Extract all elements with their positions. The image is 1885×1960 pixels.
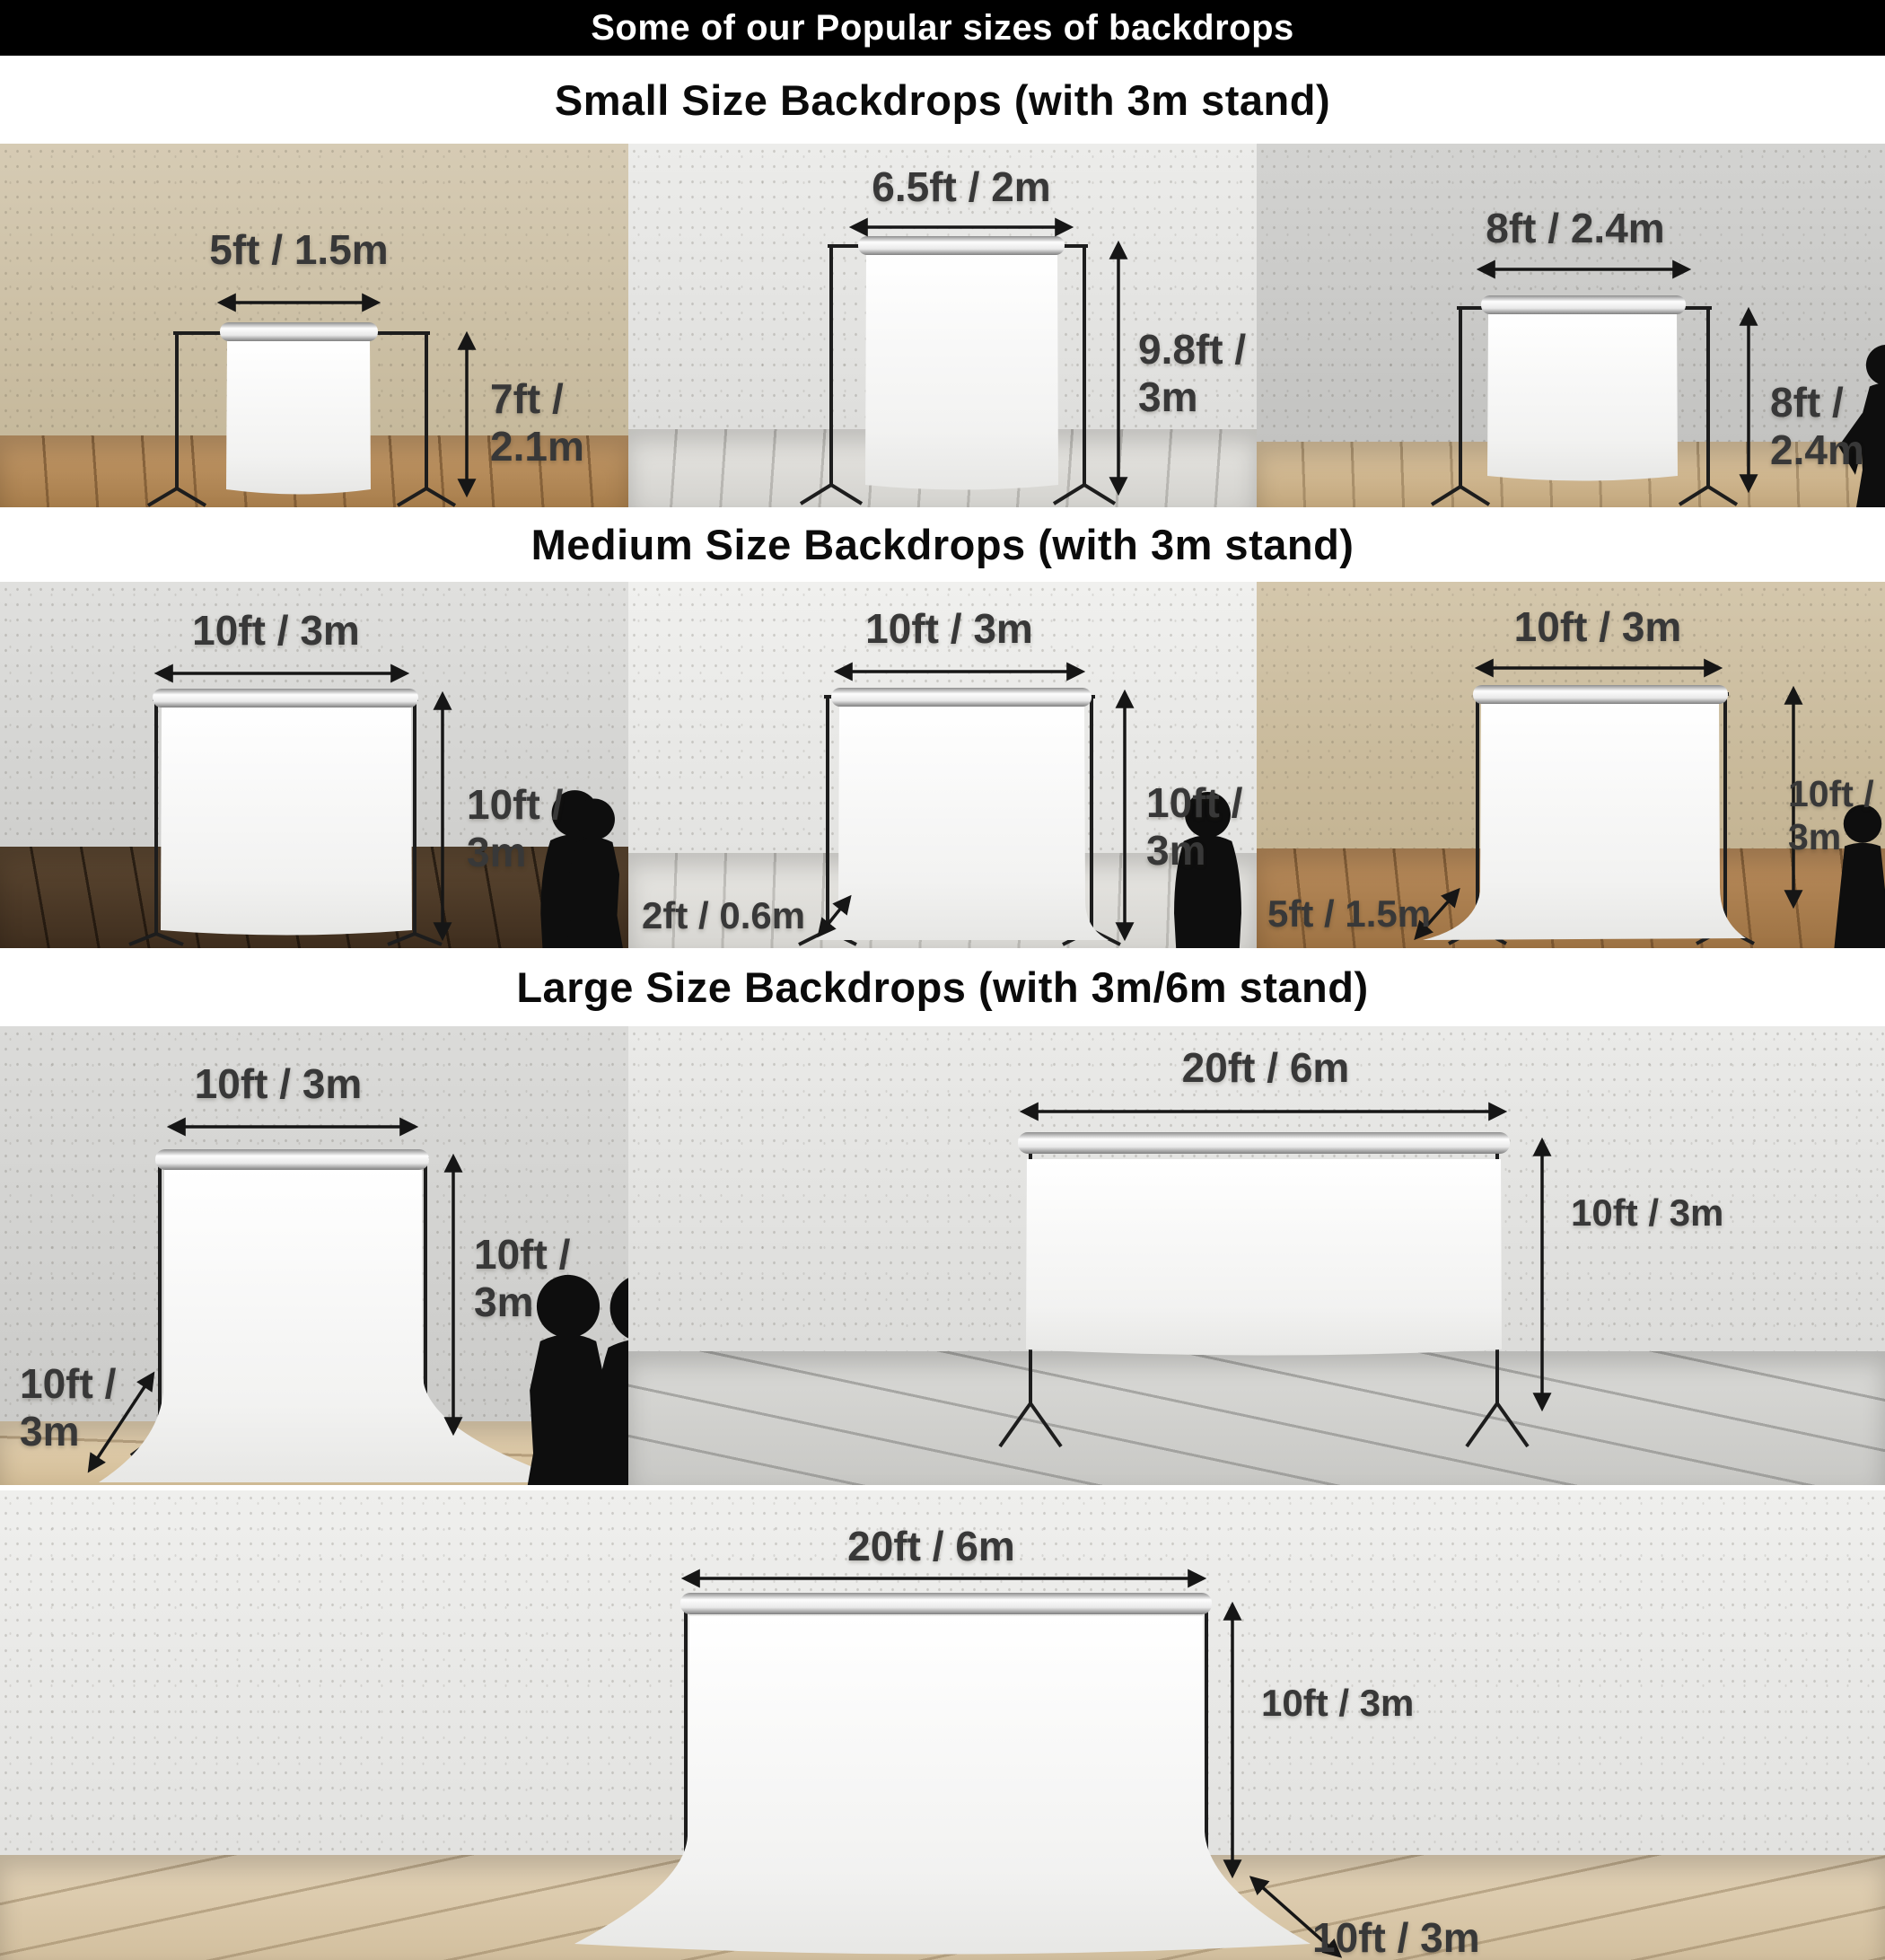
width-dimension-label: 10ft / 3m [117,607,435,655]
width-dimension-label: 10ft / 3m [790,605,1109,653]
width-dimension-label: 6.5ft / 2m [804,163,1118,211]
panel-small-8ft: 8ft / 2.4m 8ft / 2.4m [1257,144,1885,507]
section-heading-large-text: Large Size Backdrops (with 3m/6m stand) [516,962,1368,1012]
width-dimension-label: 20ft / 6m [1109,1044,1423,1092]
girl-silhouette-icon [1246,364,1257,507]
backdrop-roll [831,688,1092,707]
backdrop-sizes-infographic: Some of our Popular sizes of backdrops S… [0,0,1885,1960]
section-heading-small: Small Size Backdrops (with 3m stand) [0,56,1885,144]
row-large: 10ft / 3m 10ft / 3m 10ft / 3m [0,1026,1885,1485]
height-dimension-label: 10ft / 3m [1571,1191,1804,1235]
backdrop-roll [1018,1132,1510,1154]
section-heading-small-text: Small Size Backdrops (with 3m stand) [555,75,1330,125]
backdrop-roll [220,322,378,341]
height-dimension-label: 10ft / 3m [474,1231,570,1327]
panel-medium-couple: 10ft / 3m 10ft / 3m [0,582,628,948]
section-heading-large: Large Size Backdrops (with 3m/6m stand) [0,948,1885,1026]
sweep-dimension-label: 10ft / 3m [1312,1914,1564,1960]
backdrop-sheet [226,339,371,495]
backdrop-roll [858,236,1065,255]
backdrop-roll [680,1593,1212,1614]
height-dimension-label: 10ft / 3m [1146,779,1242,875]
sweep-dimension-label: 5ft / 1.5m [1267,892,1451,936]
height-dimension-label: 10ft / 3m [467,781,563,877]
backdrop-roll [153,689,418,708]
banner-title: Some of our Popular sizes of backdrops [591,8,1294,48]
width-dimension-label: 10ft / 3m [121,1060,435,1108]
height-dimension-label: 10ft / 3m [1788,773,1874,858]
height-dimension-label: 10ft / 3m [1261,1682,1495,1726]
backdrop-sheet [1026,1159,1502,1356]
backdrop-roll [155,1149,429,1170]
row-small: 5ft / 1.5m 7ft / 2.1m 6.5ft / 2m 9.8ft /… [0,144,1885,507]
height-dimension-label: 7ft / 2.1m [490,375,584,471]
width-dimension-label: 10ft / 3m [1441,603,1755,651]
height-dimension-label: 9.8ft / 3m [1138,326,1246,422]
width-dimension-label: 20ft / 6m [772,1523,1091,1570]
section-heading-medium-text: Medium Size Backdrops (with 3m stand) [531,520,1355,569]
panel-medium-couple-back: 10ft / 3m 10ft / 3m 5ft / 1.5m [1257,582,1885,948]
sweep-dimension-label: 2ft / 0.6m [642,894,821,938]
backdrop-sheet [813,705,1109,940]
backdrop-sheet [865,253,1058,490]
height-dimension-label: 8ft / 2.4m [1770,379,1864,475]
panel-small-6-5ft: 6.5ft / 2m 9.8ft / 3m [628,144,1257,507]
backdrop-scene [628,1026,1885,1485]
backdrop-sheet [1487,312,1678,481]
width-dimension-label: 5ft / 1.5m [142,226,456,274]
panel-medium-two-men: 10ft / 3m 10ft / 3m 2ft / 0.6m [628,582,1257,948]
backdrop-sheet [1423,702,1746,940]
backdrop-roll [1473,685,1728,704]
panel-small-5ft: 5ft / 1.5m 7ft / 2.1m [0,144,628,507]
row-medium: 10ft / 3m 10ft / 3m [0,582,1885,948]
banner: Some of our Popular sizes of backdrops [0,0,1885,56]
width-dimension-label: 8ft / 2.4m [1418,205,1732,252]
backdrop-sheet [161,706,412,936]
section-heading-medium: Medium Size Backdrops (with 3m stand) [0,507,1885,582]
panel-large-six-suited-men: 20ft / 6m 10ft / 3m 10ft / 3m [0,1490,1885,1960]
panel-large-six-people: 20ft / 6m 10ft / 3m [628,1026,1885,1485]
panel-large-three-people: 10ft / 3m 10ft / 3m 10ft / 3m [0,1026,628,1485]
backdrop-roll [1481,295,1686,314]
sweep-dimension-label: 10ft / 3m [20,1360,116,1456]
